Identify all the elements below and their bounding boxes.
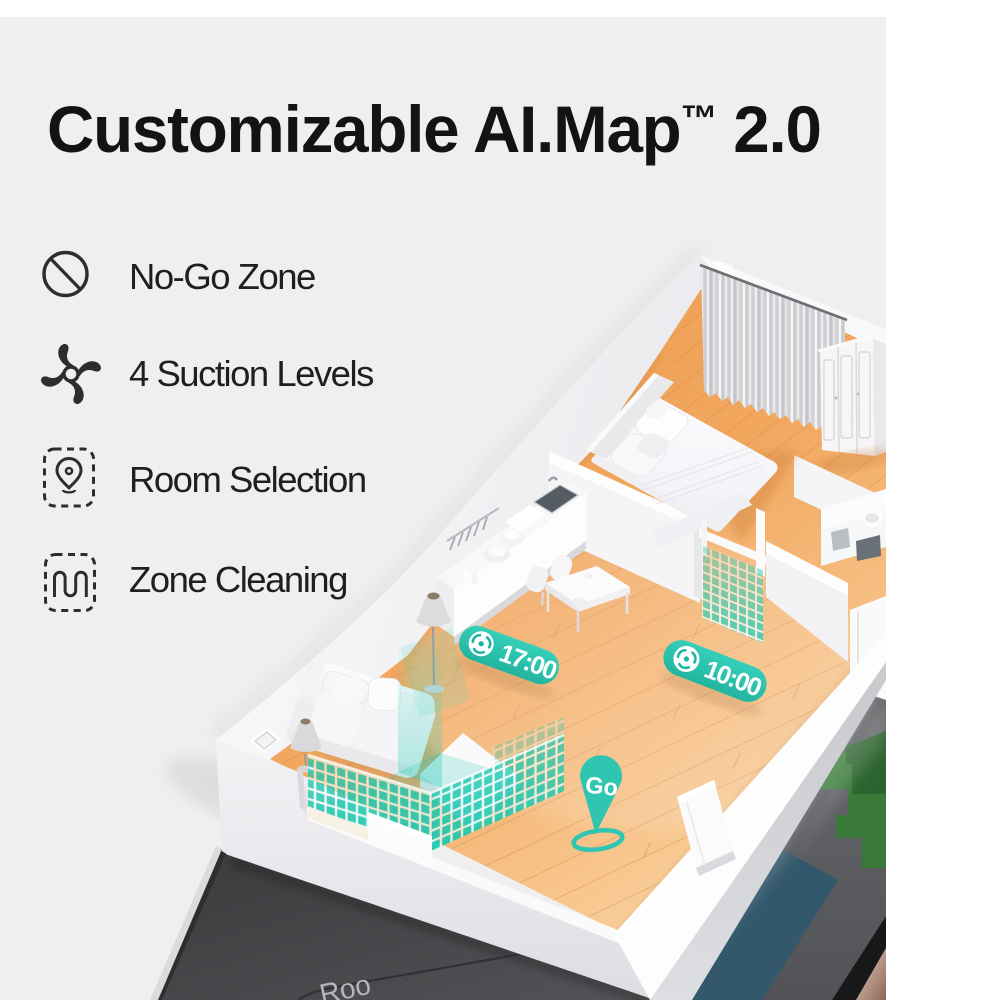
svg-text:4 Suction Levels: 4 Suction Levels [129, 353, 373, 394]
svg-text:Zone Cleaning: Zone Cleaning [129, 559, 347, 600]
svg-text:Go: Go [584, 772, 619, 801]
svg-text:No-Go Zone: No-Go Zone [129, 256, 315, 297]
svg-text:Room Selection: Room Selection [129, 459, 366, 500]
